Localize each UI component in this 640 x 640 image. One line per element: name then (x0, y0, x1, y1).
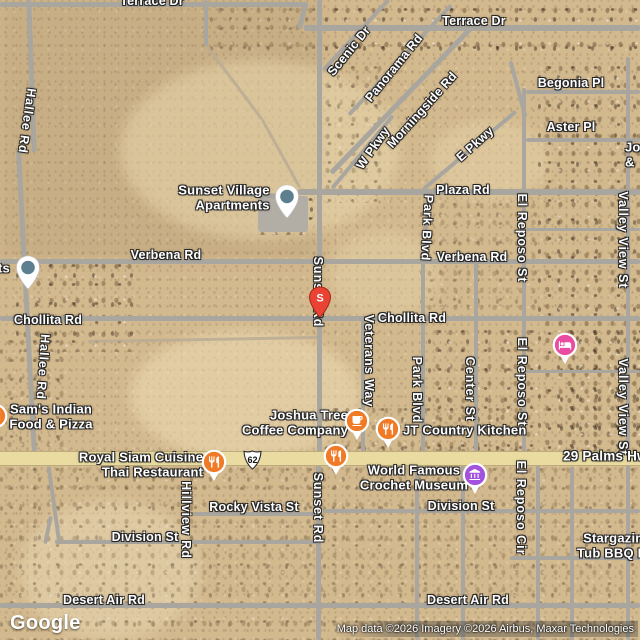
road-label-el-reposo-st-s[interactable]: El Reposo St (515, 337, 529, 426)
road-label-aster-pl[interactable]: Aster Pl (547, 120, 596, 134)
sams-restaurant-pin[interactable] (0, 403, 9, 442)
poi-label-sams-indian-food-pizza[interactable]: Sam's Indian Food & Pizza (9, 402, 92, 431)
road-label-veterans-way[interactable]: Veterans Way (362, 315, 376, 408)
road-label-rocky-vista-st[interactable]: Rocky Vista St (209, 500, 298, 514)
poi-label-stargazing-tub-bbq[interactable]: Stargazin Tub BBQ Fi (577, 531, 640, 560)
road-line (526, 138, 640, 142)
google-logo[interactable]: Google (10, 612, 81, 635)
road-label-valley-view-st-s[interactable]: Valley View St (616, 358, 630, 455)
road-label-chollita-rd-e[interactable]: Chollita Rd (378, 311, 446, 325)
road-label-begonia-pl[interactable]: Begonia Pl (538, 76, 605, 90)
road-line (536, 465, 540, 640)
sunset-village-pin[interactable] (274, 184, 300, 223)
road-label-center-st[interactable]: Center St (463, 357, 477, 422)
road-label-sunset-rd-s[interactable]: Sunset Rd (311, 473, 325, 544)
crochet-museum-pin[interactable] (461, 462, 489, 501)
road-label-division-st-w[interactable]: Division St (112, 530, 179, 544)
road-label-verbena-rd-e[interactable]: Verbena Rd (437, 250, 508, 264)
route-shield-62: 62 (243, 450, 262, 475)
s-marker[interactable]: S (308, 286, 332, 323)
road-label-el-reposo-st-n[interactable]: El Reposo St (515, 193, 529, 282)
svg-text:S: S (316, 292, 323, 304)
lodging-pin[interactable] (551, 332, 579, 371)
poi-label-world-famous-crochet-museum[interactable]: World Famous Crochet Museum (360, 463, 468, 492)
poi-label-royal-siam-cuisine[interactable]: Royal Siam Cuisine Thai Restaurant (79, 450, 203, 479)
road-line (204, 0, 208, 46)
road-label-division-st-e[interactable]: Division St (428, 499, 495, 513)
poi-label-sunset-village-apartments[interactable]: Sunset Village Apartments (178, 183, 269, 212)
jt-kitchen-restaurant-pin[interactable] (374, 416, 402, 455)
road-label-desert-air-rd-w[interactable]: Desert Air Rd (63, 593, 145, 607)
left-edge-place-pin[interactable] (15, 255, 41, 294)
poi-label-jt-country-kitchen[interactable]: JT Country Kitchen (403, 424, 527, 439)
royal-siam-restaurant-pin[interactable] (200, 449, 228, 488)
road-label-plaza-rd[interactable]: Plaza Rd (436, 183, 490, 197)
road-line (570, 467, 574, 640)
map-attribution[interactable]: Map data ©2026 Imagery ©2026 Airbus, Max… (333, 621, 638, 637)
road-label-park-blvd-s[interactable]: Park Blvd (410, 357, 424, 424)
road-label-valley-view-st-n[interactable]: Valley View St (616, 191, 630, 288)
map-canvas[interactable]: 62 Terrace DrTerrace DrScenic DrPanorama… (0, 0, 640, 640)
poi-label-cut-label-left-ts[interactable]: ts (0, 262, 10, 277)
coffee-pin[interactable] (343, 408, 371, 447)
route-shield-number: 62 (247, 455, 257, 465)
road-label-hillview-rd[interactable]: Hillview Rd (179, 481, 193, 559)
road-label-29-palms-hwy[interactable]: 29 Palms Hwy (563, 448, 640, 463)
road-label-el-reposo-cir[interactable]: El Reposo Cir (514, 461, 528, 556)
poi-label-joshua-tree-coffee-company[interactable]: Joshua Tree Coffee Company (242, 408, 348, 437)
road-line (526, 90, 640, 94)
road-label-desert-air-rd-e[interactable]: Desert Air Rd (427, 593, 509, 607)
road-label-verbena-rd-w[interactable]: Verbena Rd (131, 248, 202, 262)
poi-label-cut-label-right-jo[interactable]: Jo & (625, 140, 640, 169)
road-label-terrace-dr-e[interactable]: Terrace Dr (442, 14, 506, 28)
highway-restaurant-pin[interactable] (322, 443, 350, 482)
road-label-chollita-rd-w[interactable]: Chollita Rd (14, 313, 82, 327)
road-label-terrace-dr-w[interactable]: Terrace Dr (120, 0, 184, 8)
